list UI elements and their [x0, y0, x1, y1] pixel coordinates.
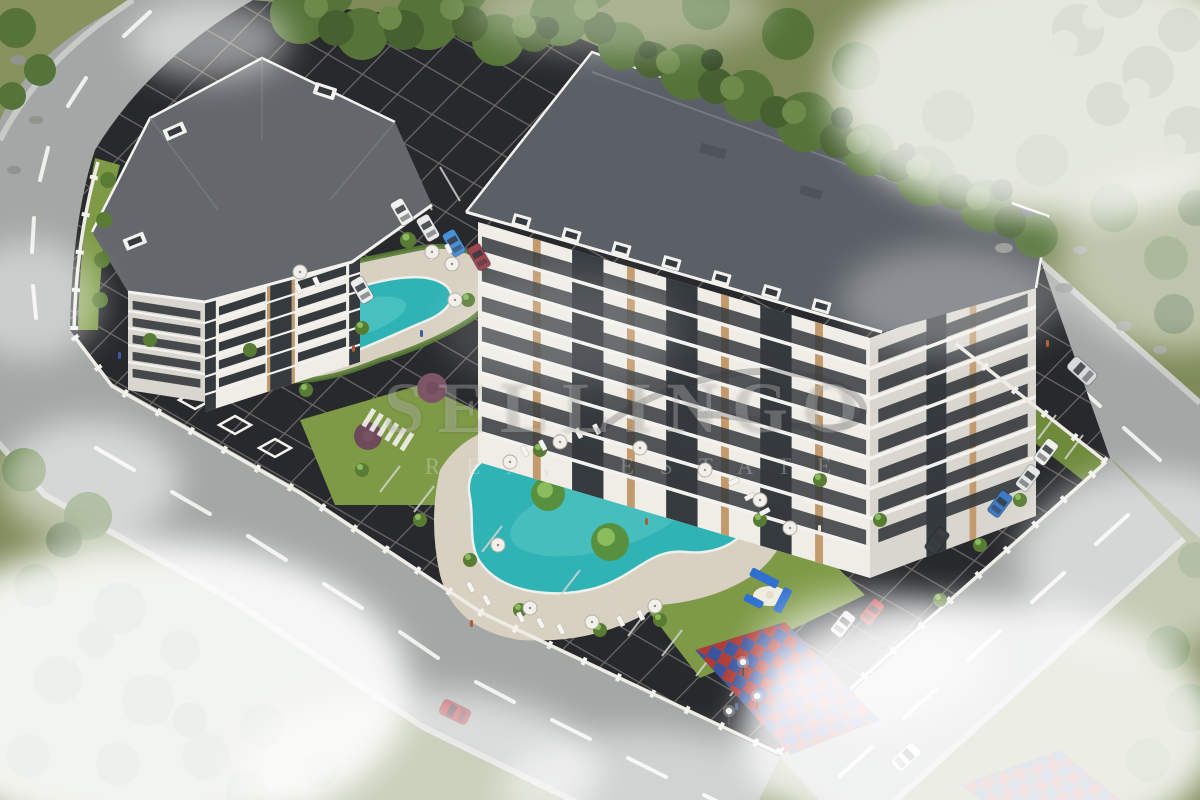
left-building-west-facade — [128, 290, 205, 402]
coffee-table — [766, 591, 774, 599]
gazebo-upper — [417, 373, 447, 403]
gazebo-lower — [354, 422, 382, 450]
render-canvas — [0, 0, 1200, 800]
architectural-render: SELLINGO REAL ESTATE — [0, 0, 1200, 800]
